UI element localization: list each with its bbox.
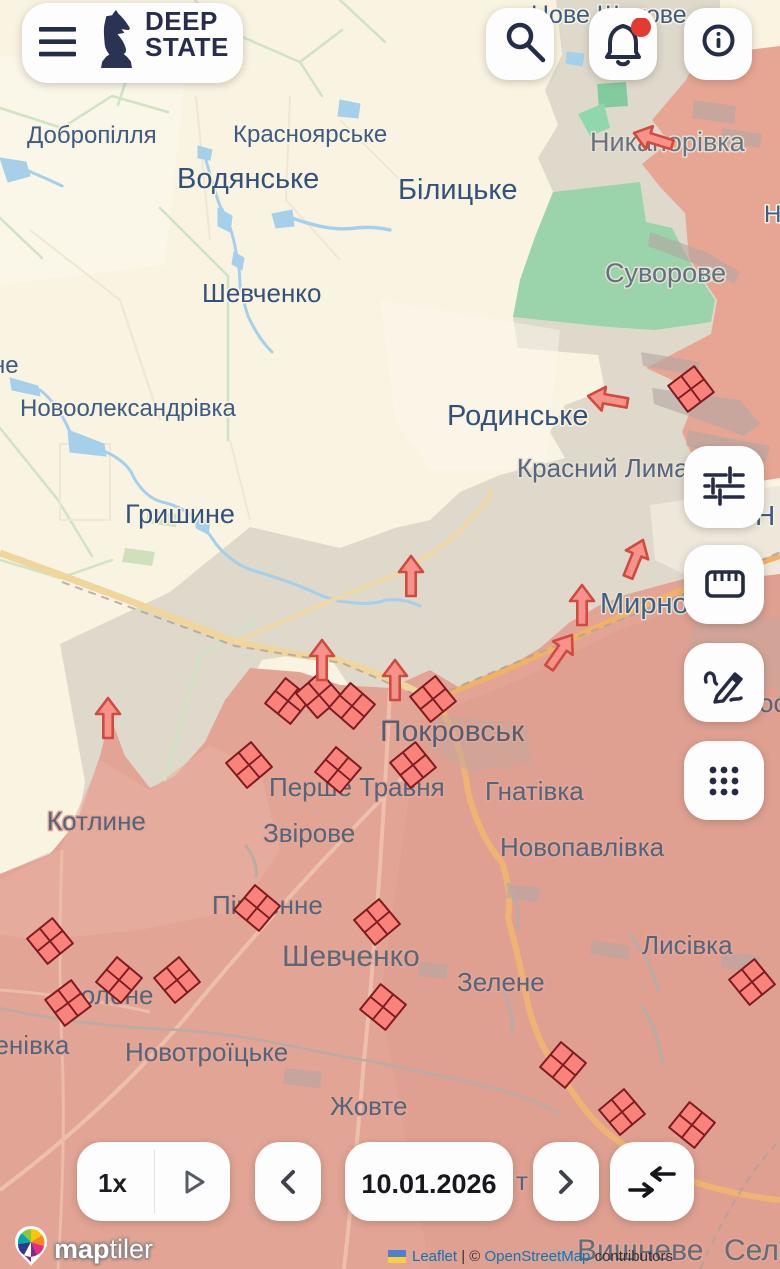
- svg-text:не: не: [0, 352, 19, 379]
- svg-text:Красноярське: Красноярське: [233, 121, 387, 148]
- svg-text:Зеленівка: Зеленівка: [0, 1030, 70, 1060]
- svg-text:Селидове: Селидове: [724, 1234, 780, 1267]
- svg-text:Добропілля: Добропілля: [27, 122, 157, 149]
- svg-text:Новопавлівка: Новопавлівка: [500, 832, 665, 862]
- svg-text:Гнатівка: Гнатівка: [485, 776, 584, 806]
- svg-text:Жовте: Жовте: [330, 1091, 408, 1121]
- svg-text:Но: Но: [764, 201, 780, 228]
- svg-text:Суворове: Суворове: [605, 258, 726, 288]
- svg-text:Шевченко: Шевченко: [202, 278, 321, 308]
- svg-text:Зелене: Зелене: [457, 967, 545, 997]
- svg-text:Водянське: Водянське: [177, 163, 319, 195]
- svg-text:Шевченко: Шевченко: [282, 940, 420, 973]
- svg-text:Звірове: Звірове: [263, 818, 355, 848]
- svg-text:Лисівка: Лисівка: [642, 930, 733, 960]
- svg-text:Котлине: Котлине: [47, 806, 146, 836]
- svg-text:Білицьке: Білицьке: [398, 174, 517, 206]
- svg-text:Гришине: Гришине: [125, 499, 235, 529]
- svg-text:Родинське: Родинське: [447, 400, 588, 432]
- svg-text:Новотроїцьке: Новотроїцьке: [125, 1037, 288, 1067]
- svg-text:Новоолександрівка: Новоолександрівка: [20, 395, 237, 422]
- svg-text:Красний Лиман: Красний Лиман: [517, 453, 703, 483]
- svg-text:т: т: [516, 1166, 528, 1196]
- svg-text:Покровськ: Покровськ: [380, 715, 525, 748]
